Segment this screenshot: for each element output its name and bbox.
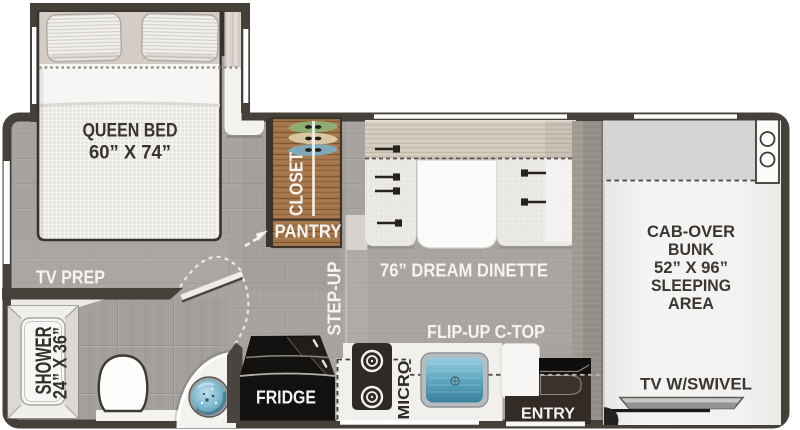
svg-text:ENTRY: ENTRY <box>521 406 575 423</box>
svg-text:STEP-UP: STEP-UP <box>325 262 345 336</box>
svg-text:FLIP-UP C-TOP: FLIP-UP C-TOP <box>427 322 545 342</box>
svg-text:24” X 36”: 24” X 36” <box>51 327 72 399</box>
svg-text:CLOSET: CLOSET <box>287 152 307 216</box>
svg-text:TV W/SWIVEL: TV W/SWIVEL <box>640 376 752 394</box>
svg-text:QUEEN BED: QUEEN BED <box>83 121 178 142</box>
svg-text:MICRO: MICRO <box>396 361 413 420</box>
svg-text:FRIDGE: FRIDGE <box>256 388 316 408</box>
svg-text:76” DREAM DINETTE: 76” DREAM DINETTE <box>380 261 548 281</box>
svg-text:BUNK: BUNK <box>668 241 714 259</box>
svg-text:SLEEPING: SLEEPING <box>651 277 731 295</box>
svg-text:TV PREP: TV PREP <box>36 268 105 288</box>
svg-text:52” X 96”: 52” X 96” <box>654 259 728 277</box>
svg-text:60” X 74”: 60” X 74” <box>89 143 171 164</box>
svg-text:PANTRY: PANTRY <box>275 222 342 242</box>
svg-text:AREA: AREA <box>668 295 714 313</box>
svg-text:CAB-OVER: CAB-OVER <box>647 223 735 241</box>
